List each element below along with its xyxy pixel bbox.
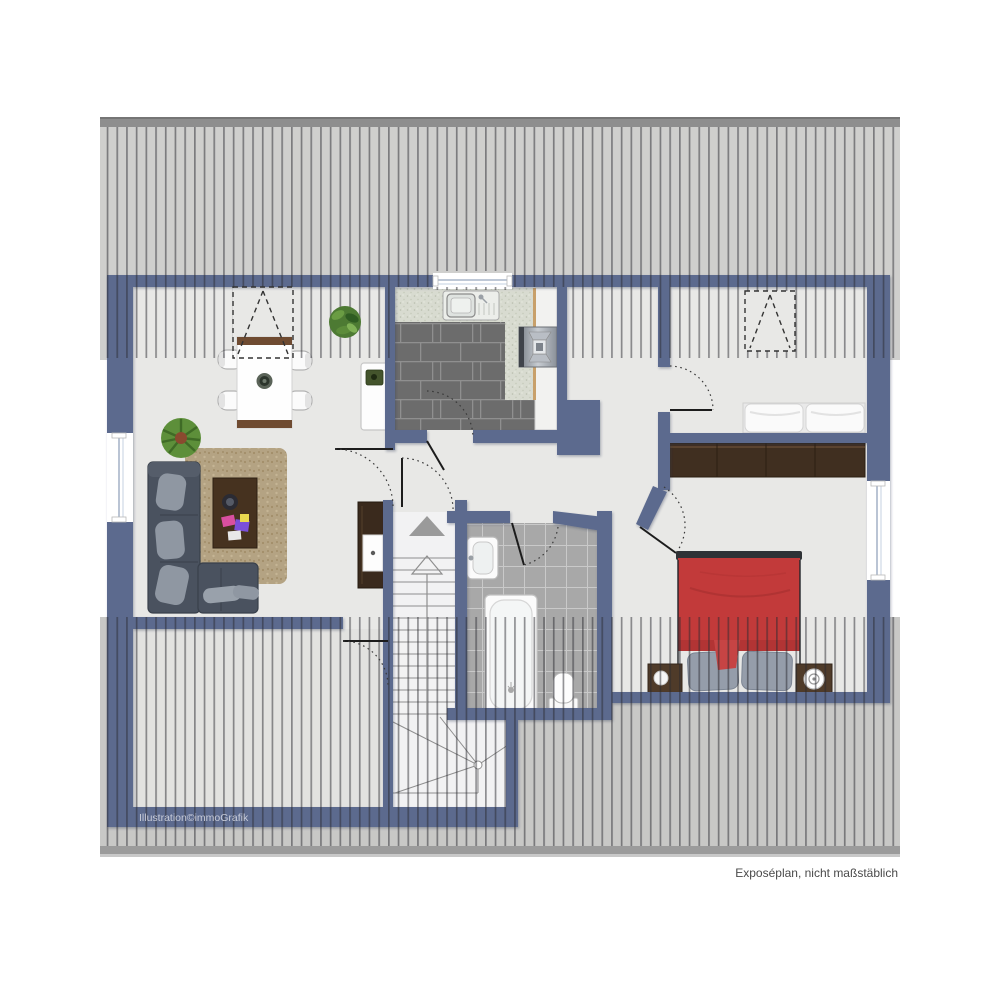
disclaimer-label: Exposéplan, nicht maßstäblich: [735, 866, 898, 880]
wall-kitchen-right: [557, 283, 567, 400]
plant-icon: [329, 306, 361, 338]
roof-ridge-edge: [100, 117, 900, 119]
tv-lowboard: [358, 502, 387, 588]
window-right: [867, 481, 890, 580]
roof-eave-shadow: [100, 846, 900, 854]
roof-eave-edge: [100, 854, 900, 857]
window-kitchen: [433, 273, 512, 289]
fridge-icon: [361, 363, 388, 430]
watermark-label: Illustration©immoGrafik: [139, 812, 249, 824]
bench-sofa: [743, 403, 865, 433]
kitchen-sink-icon: [443, 291, 499, 320]
plant-icon: [161, 418, 201, 458]
dining-table: [237, 337, 292, 428]
bathroom-sink-icon: [467, 537, 498, 579]
chimney-block: [557, 400, 600, 455]
window-left: [107, 433, 133, 522]
wall-kitchen-bottom-right: [473, 430, 567, 443]
coffee-table: [213, 478, 257, 548]
sideboard: [668, 443, 865, 477]
wall-kitchen-bottom-left: [385, 430, 427, 443]
floor-plan-drawing: Illustration©immoGrafik Exposéplan, nich…: [0, 0, 1000, 998]
wall-room-bedroom-separator: [658, 433, 867, 443]
roof-ridge: [100, 118, 900, 127]
floor-plan-page: Illustration©immoGrafik Exposéplan, nich…: [0, 0, 1000, 998]
oven-icon: [519, 327, 557, 367]
wall-room-left-lower: [658, 412, 670, 490]
